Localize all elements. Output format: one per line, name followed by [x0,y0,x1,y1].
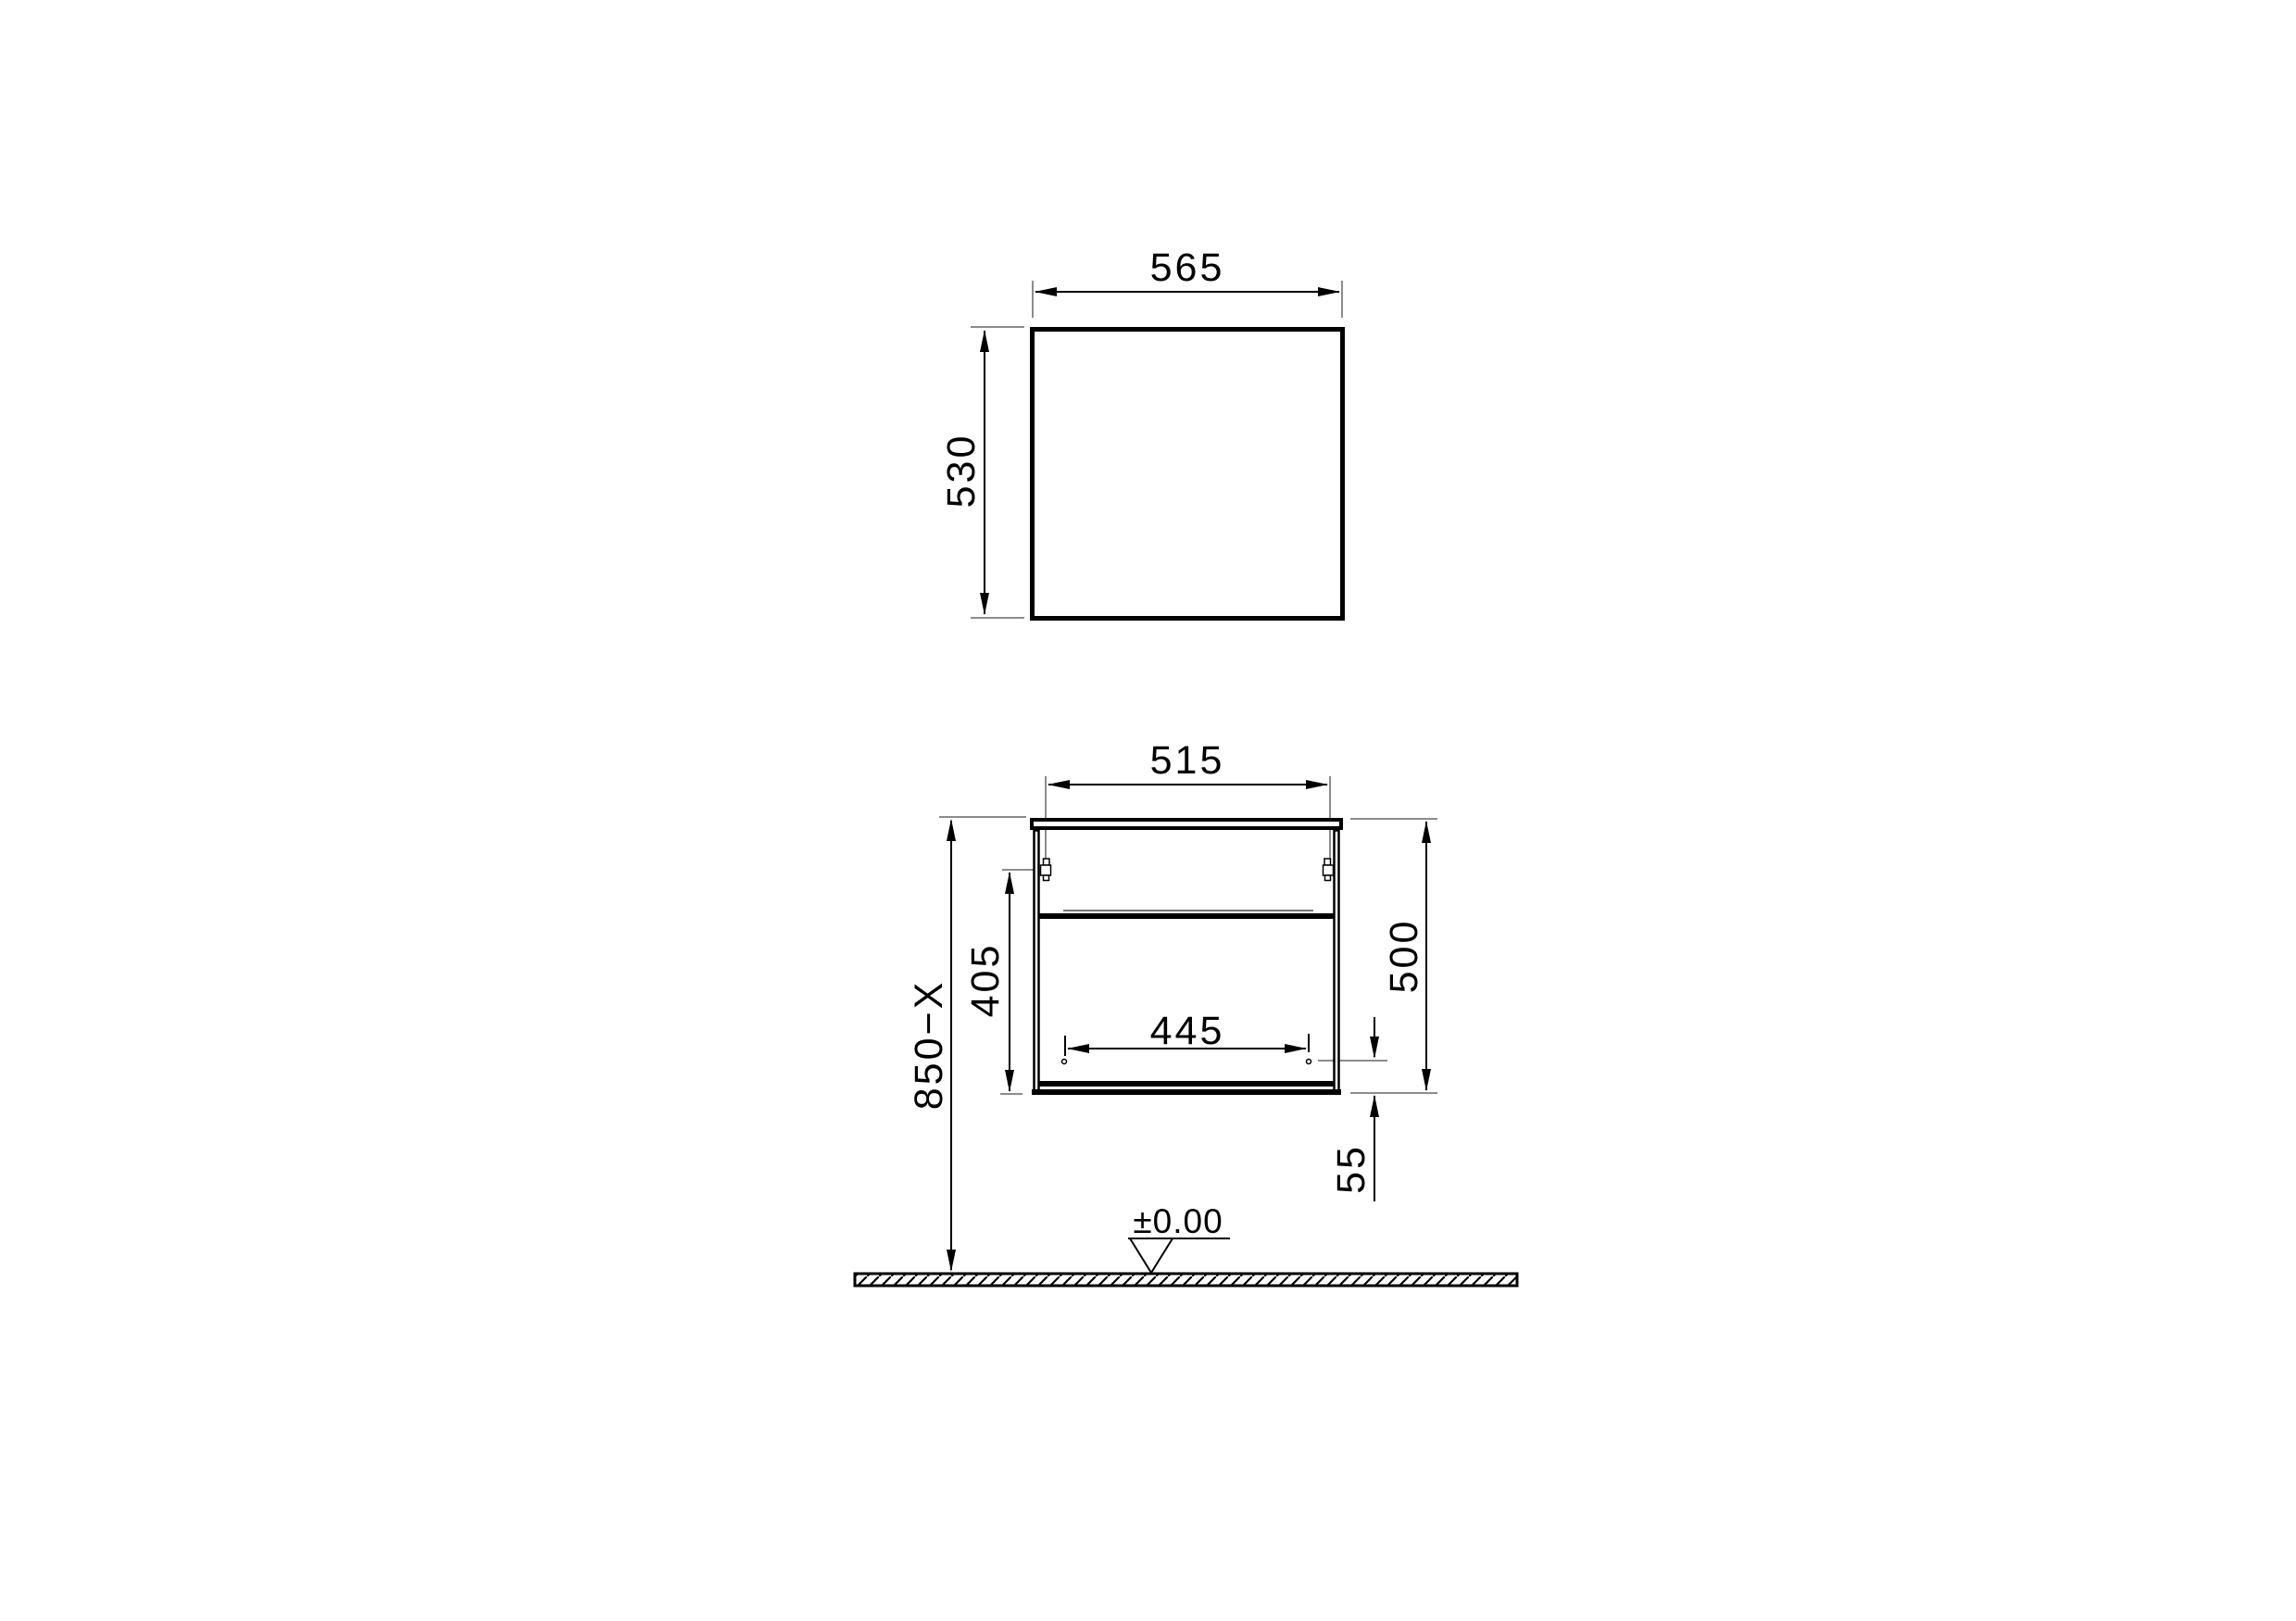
arrow-down-icon [1422,1069,1431,1091]
arrow-right-icon [1306,780,1328,789]
level-marker-triangle-icon [1130,1238,1173,1273]
top-panel [1032,820,1341,828]
drawing-canvas: 565 530 515 850−X 405 500 55 445 ±0.00 [0,0,2296,1621]
dim-850x-label: 850−X [907,980,951,1111]
left-mounting-clip [1041,859,1051,881]
left-dowel-hole [1062,1060,1067,1064]
dim-565-label: 565 [1150,245,1225,290]
arrow-left-icon [1067,1044,1089,1053]
level-0-label: ±0.00 [1133,1202,1223,1240]
bottom-outer-panel [1032,1089,1341,1095]
top-view [1033,330,1343,619]
arrow-down-icon [1370,1037,1379,1059]
arrow-up-icon [1005,872,1014,894]
bottom-inner-panel [1038,1081,1335,1087]
arrow-up-icon [1422,821,1431,843]
arrow-right-icon [1285,1044,1307,1053]
arrow-down-icon [980,593,989,615]
arrow-down-icon [947,1250,956,1272]
arrow-left-icon [1048,780,1070,789]
clip-stem [1324,859,1331,865]
left-side-panel [1035,831,1039,1094]
arrow-up-icon [947,819,956,841]
arrow-down-icon [1005,1070,1014,1092]
dim-405-label: 405 [963,943,1008,1018]
dim-530-label: 530 [939,434,984,509]
arrow-left-icon [1035,287,1057,296]
front-view [1032,820,1341,1095]
dim-55-label: 55 [1329,1144,1374,1194]
dim-515-label: 515 [1150,738,1225,783]
clip-body [1041,865,1051,875]
top-view-outline [1033,330,1343,619]
clip-foot [1044,875,1049,881]
clip-stem [1044,859,1050,865]
mid-divider [1038,913,1335,919]
dim-500-label: 500 [1382,919,1426,994]
technical-drawing: 565 530 515 850−X 405 500 55 445 ±0.00 [0,0,2296,1621]
ground [855,1238,1517,1286]
arrow-up-icon [1370,1095,1379,1117]
right-mounting-clip [1324,859,1334,881]
arrow-right-icon [1318,287,1340,296]
clip-body [1324,865,1334,875]
clip-foot [1325,875,1331,881]
dim-445-label: 445 [1150,1009,1225,1053]
arrow-up-icon [980,330,989,352]
right-side-panel [1335,831,1339,1094]
right-dowel-hole [1307,1060,1311,1064]
ground-hatch-band [855,1274,1517,1286]
